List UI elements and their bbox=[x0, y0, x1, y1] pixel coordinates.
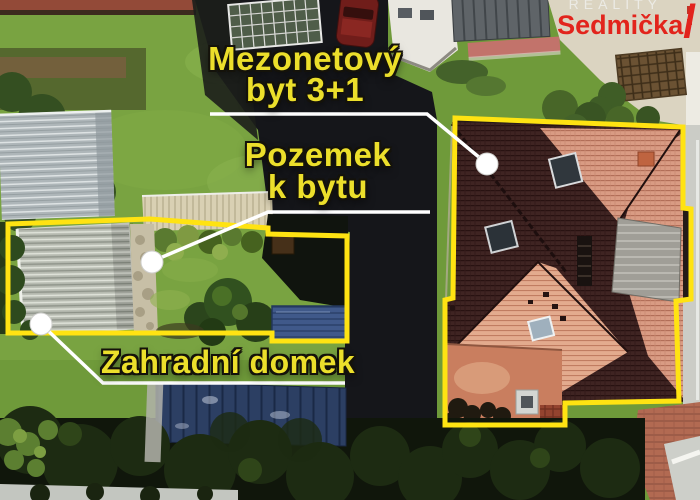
garden-path bbox=[145, 384, 164, 463]
stone-path bbox=[130, 224, 158, 334]
skylight bbox=[549, 153, 582, 188]
apartment-label-line1: Mezonetový bbox=[163, 43, 447, 74]
pointer-dot-apartment bbox=[476, 153, 498, 175]
brand-name: Sedmička bbox=[557, 10, 683, 40]
pointer-dot-land bbox=[141, 251, 163, 273]
brand-slash-icon: / bbox=[683, 6, 696, 36]
skylight bbox=[485, 221, 517, 253]
garden-house-label: Zahradní domek bbox=[101, 344, 355, 381]
roof-grey-section bbox=[612, 218, 681, 302]
aerial-photo-listing: Mezonetový byt 3+1 Pozemek k bytu Zahrad… bbox=[0, 0, 700, 500]
skylight bbox=[528, 317, 554, 341]
apartment-label: Mezonetový byt 3+1 bbox=[163, 43, 447, 105]
blue-bench bbox=[272, 306, 346, 342]
pergola-trellis bbox=[616, 49, 686, 102]
pointer-dot-garden-house bbox=[30, 313, 52, 335]
neighbor-roof-edge bbox=[0, 0, 196, 11]
metal-seam-roof bbox=[452, 0, 550, 41]
land-label-line1: Pozemek bbox=[206, 139, 430, 171]
land-label-line2: k bytu bbox=[206, 171, 430, 203]
land-label: Pozemek k bytu bbox=[206, 139, 430, 203]
garage-roof bbox=[0, 110, 115, 220]
brand-watermark: REALITY Sedmička/ bbox=[557, 0, 696, 42]
apartment-label-line2: byt 3+1 bbox=[163, 74, 447, 105]
